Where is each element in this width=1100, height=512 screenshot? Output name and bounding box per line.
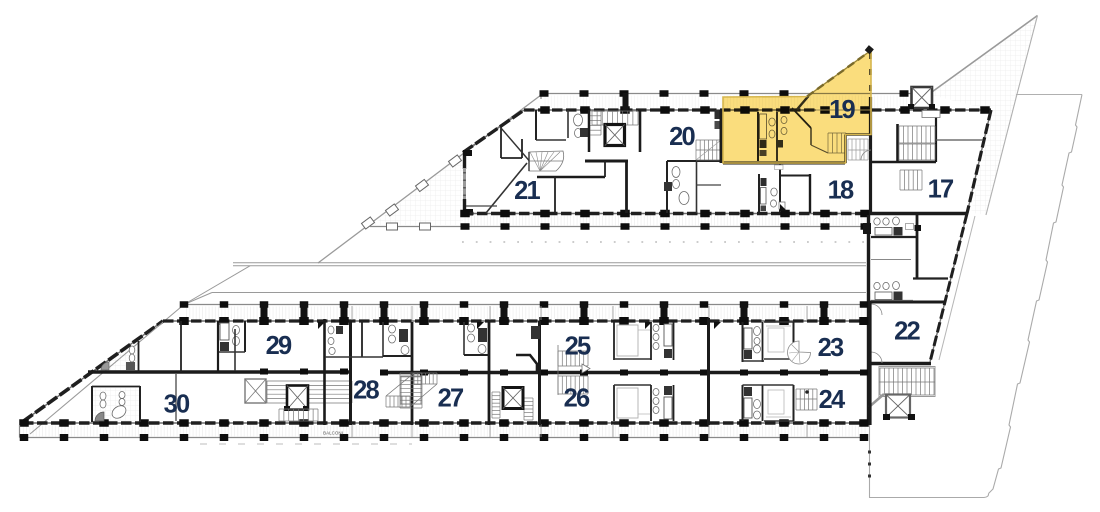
svg-text:23: 23 — [818, 334, 844, 362]
svg-text:28: 28 — [353, 377, 379, 405]
svg-text:24: 24 — [819, 386, 846, 414]
svg-text:21: 21 — [514, 177, 540, 205]
svg-text:20: 20 — [669, 123, 695, 151]
svg-text:26: 26 — [564, 385, 590, 413]
svg-text:25: 25 — [565, 333, 591, 361]
svg-text:27: 27 — [438, 385, 464, 413]
svg-text:22: 22 — [894, 318, 920, 346]
svg-text:17: 17 — [928, 176, 954, 204]
svg-text:19: 19 — [829, 96, 855, 124]
svg-text:30: 30 — [164, 391, 190, 419]
svg-text:29: 29 — [266, 332, 292, 360]
svg-text:18: 18 — [828, 177, 854, 205]
